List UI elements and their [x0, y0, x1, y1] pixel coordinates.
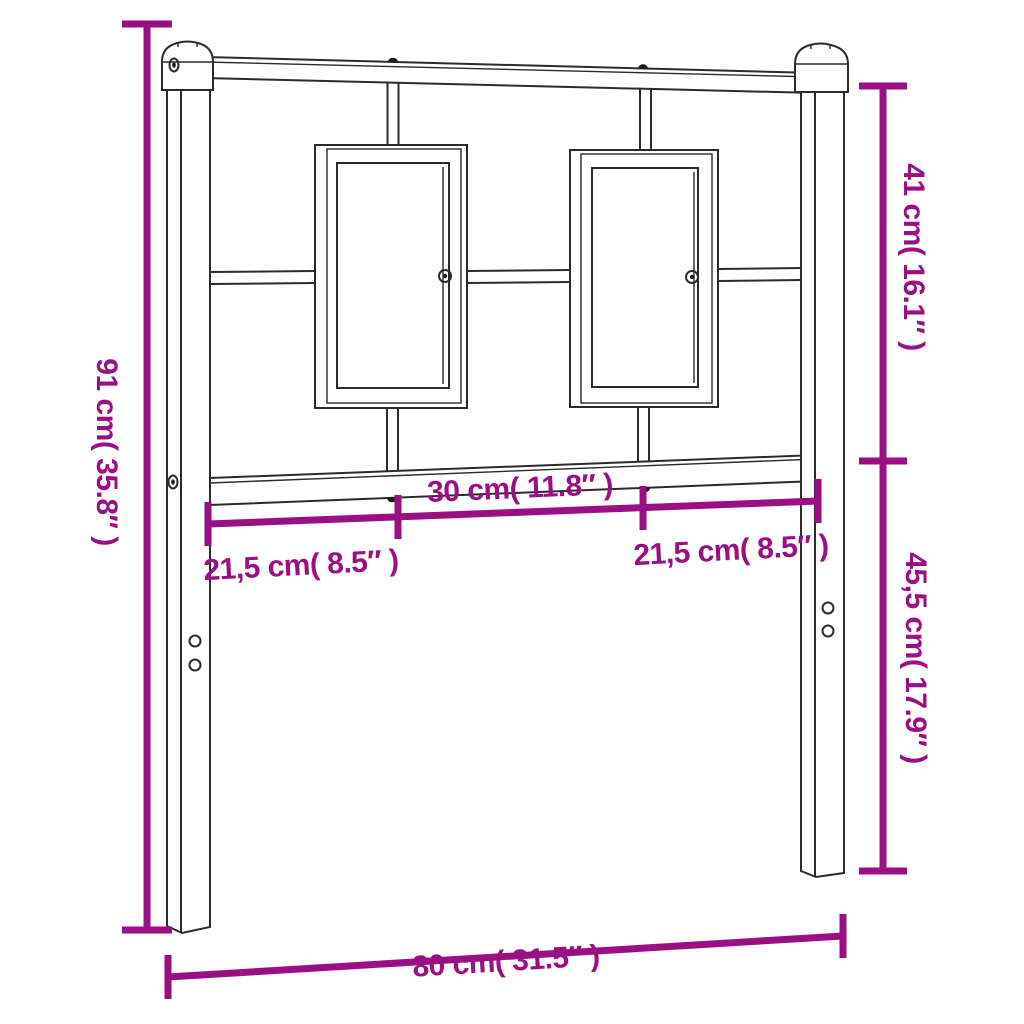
product-dimension-diagram: 91 cm( 35.8″ ) 41 cm( 16.1″ ) 45,5 cm( 1… [0, 0, 1024, 1024]
left-post [162, 42, 213, 934]
screw-cap [388, 58, 398, 63]
dim-label-lower-section-height: 45,5 cm( 17.9″ ) [898, 552, 932, 764]
upper-stems [388, 83, 652, 151]
dim-total-height-line [122, 24, 172, 930]
headboard-drawing [0, 0, 1024, 1024]
dim-label-total-height: 91 cm( 35.8″ ) [89, 358, 123, 545]
dim-label-upper-section-height: 41 cm( 16.1″ ) [896, 163, 930, 350]
panel-left [315, 145, 467, 408]
right-post [795, 44, 848, 878]
post-cap [795, 44, 848, 93]
panel-right [570, 150, 718, 407]
top-rail [205, 57, 816, 93]
screw-cap [638, 64, 648, 69]
